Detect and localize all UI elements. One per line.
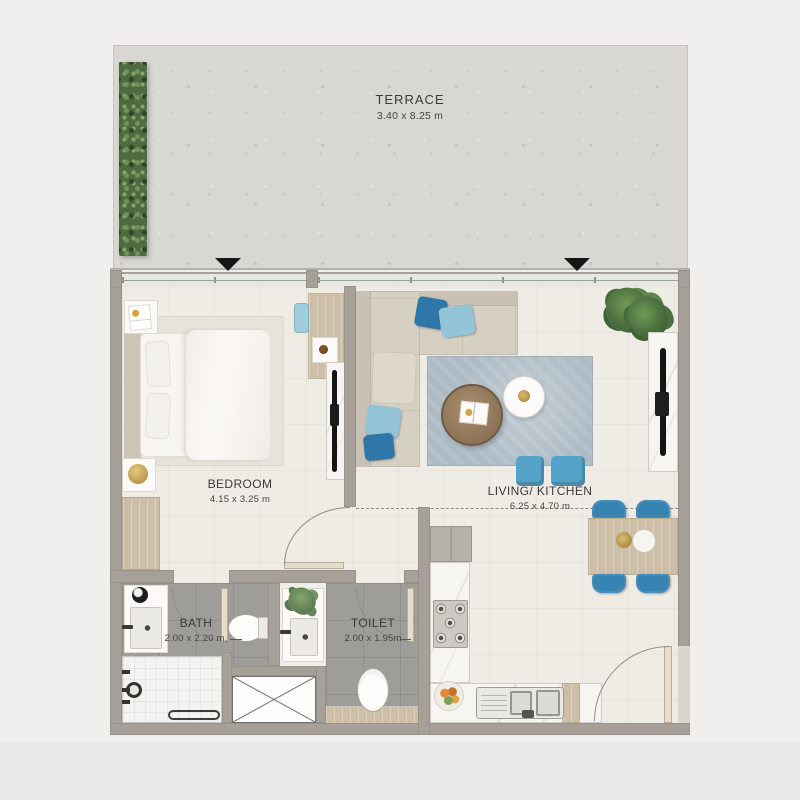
soap-dish xyxy=(132,587,148,603)
shower-screen-handle xyxy=(168,710,220,720)
glass-wall xyxy=(122,272,306,286)
living-kitchen-dims: 6.25 x 4.70 m xyxy=(440,501,640,512)
wall-shaft-left xyxy=(222,652,232,723)
toilet-faucet xyxy=(280,630,291,634)
bed-pillow xyxy=(145,392,171,439)
magazine xyxy=(128,304,152,331)
hob-burner xyxy=(435,603,447,615)
terrace-slab-edge xyxy=(110,268,690,270)
glass-wall-post xyxy=(110,270,122,288)
shower-valve xyxy=(122,700,130,704)
bath-faucet xyxy=(122,625,133,629)
glass-wall-post xyxy=(306,270,318,288)
dining-plate xyxy=(632,529,656,553)
terrace-name: TERRACE xyxy=(310,92,510,107)
shower-arm xyxy=(122,688,130,692)
bath-name: BATH xyxy=(146,616,246,630)
terrace-floor xyxy=(113,45,688,270)
wall-bedroom-south xyxy=(110,570,174,583)
bath-wc-tank xyxy=(258,617,268,639)
bedroom-tv-bracket xyxy=(330,404,339,426)
living-tv-bracket xyxy=(655,392,669,416)
hob-burner xyxy=(454,632,466,644)
bed-pillow xyxy=(145,340,171,387)
wall-shaft-top xyxy=(229,666,326,676)
room-label-living-kitchen: LIVING/ KITCHEN 6.25 x 4.70 m xyxy=(440,484,640,512)
entry-triangle-icon xyxy=(564,258,590,271)
bedroom-name: BEDROOM xyxy=(140,477,340,491)
bedroom-dims: 4.15 x 3.25 m xyxy=(140,494,340,505)
blue-pouf xyxy=(551,456,585,486)
shower-valve xyxy=(122,670,130,674)
toilet-dims-leader-line xyxy=(400,639,411,640)
bed-duvet xyxy=(186,330,270,460)
side-table-decor xyxy=(518,390,530,402)
room-label-bedroom: BEDROOM 4.15 x 3.25 m xyxy=(140,477,340,505)
service-shaft xyxy=(232,676,316,723)
kitchen-tall-unit xyxy=(430,526,472,562)
wall-exterior-left xyxy=(110,270,122,735)
sink-basin xyxy=(536,690,560,716)
sink-faucet xyxy=(522,710,534,718)
toilet-wc xyxy=(357,668,389,712)
bath-dims-leader-line xyxy=(230,639,242,640)
wall-shaft-right xyxy=(316,666,326,723)
dining-chair xyxy=(636,500,670,519)
room-label-terrace: TERRACE 3.40 x 8.25 m xyxy=(310,92,510,122)
glass-wall xyxy=(318,272,678,286)
desk-seat xyxy=(294,303,309,333)
open-book xyxy=(459,401,489,426)
dining-centerpiece xyxy=(616,532,632,548)
wall-bath-toilet-divider xyxy=(268,583,280,666)
fruit-bowl xyxy=(434,681,464,711)
toilet-name: TOILET xyxy=(323,616,423,630)
wall-bedroom-living-divider xyxy=(344,286,356,507)
floor-plan: TERRACE 3.40 x 8.25 m BEDROOM 4.15 x 3.2… xyxy=(0,0,800,800)
cutting-board xyxy=(562,683,580,723)
wall-exterior-bottom xyxy=(110,723,690,735)
sink-drainboard xyxy=(481,691,507,715)
bed-headboard xyxy=(124,328,140,462)
toilet-vanity-sink xyxy=(290,618,318,656)
entry-triangle-icon xyxy=(215,258,241,271)
glass-wall-post xyxy=(678,270,690,288)
planter-strip xyxy=(119,62,147,256)
page-bottom-band xyxy=(0,742,800,800)
blue-pouf xyxy=(516,456,544,486)
hob-burner xyxy=(444,617,456,629)
sofa-pillow xyxy=(363,433,396,462)
dining-chair xyxy=(592,574,626,593)
coffee-cup xyxy=(319,345,328,354)
dining-chair xyxy=(636,574,670,593)
sofa-pillow xyxy=(438,304,476,338)
sofa-lounger-cushion xyxy=(371,351,417,405)
entry-threshold xyxy=(678,646,690,723)
hob-burner xyxy=(435,632,447,644)
wall-bedroom-south xyxy=(229,570,356,583)
wardrobe xyxy=(122,497,160,570)
terrace-dims: 3.40 x 8.25 m xyxy=(310,110,510,122)
hob-burner xyxy=(454,603,466,615)
living-kitchen-name: LIVING/ KITCHEN xyxy=(440,484,640,498)
